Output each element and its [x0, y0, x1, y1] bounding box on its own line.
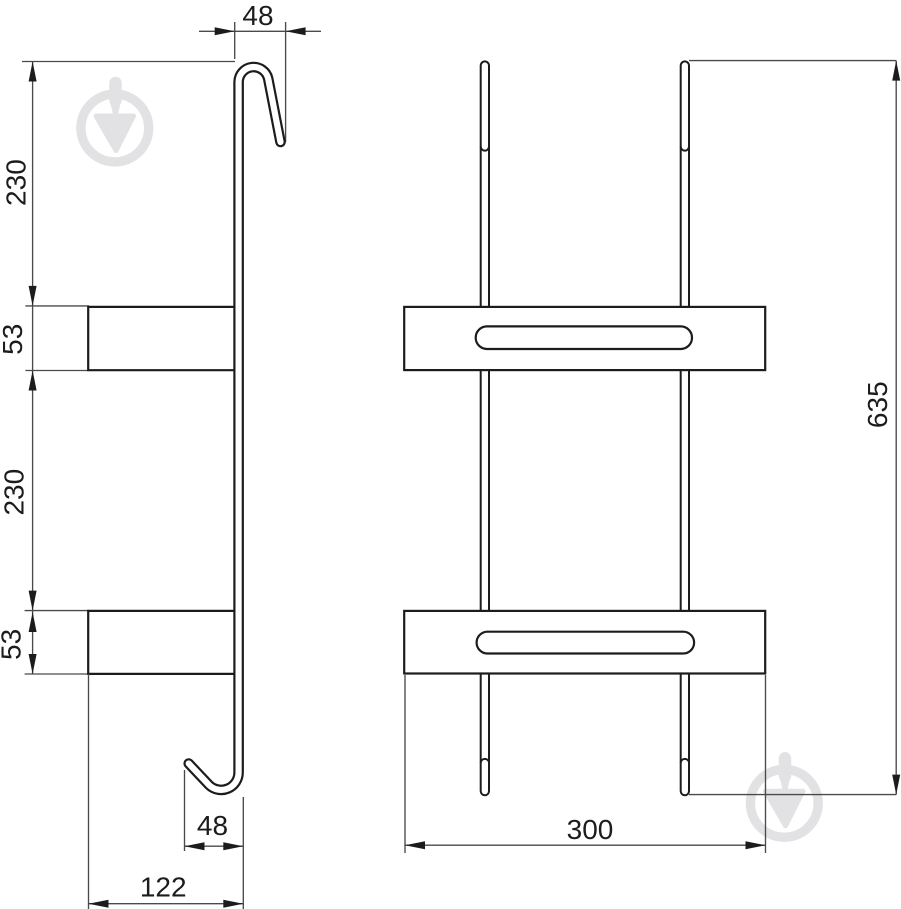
svg-text:48: 48: [242, 0, 273, 31]
svg-text:53: 53: [0, 629, 27, 660]
svg-text:300: 300: [567, 814, 614, 845]
svg-text:635: 635: [862, 381, 893, 428]
svg-text:48: 48: [197, 810, 228, 841]
svg-text:53: 53: [0, 324, 28, 355]
svg-text:230: 230: [0, 159, 31, 206]
svg-text:122: 122: [140, 872, 187, 903]
svg-text:230: 230: [0, 469, 30, 516]
